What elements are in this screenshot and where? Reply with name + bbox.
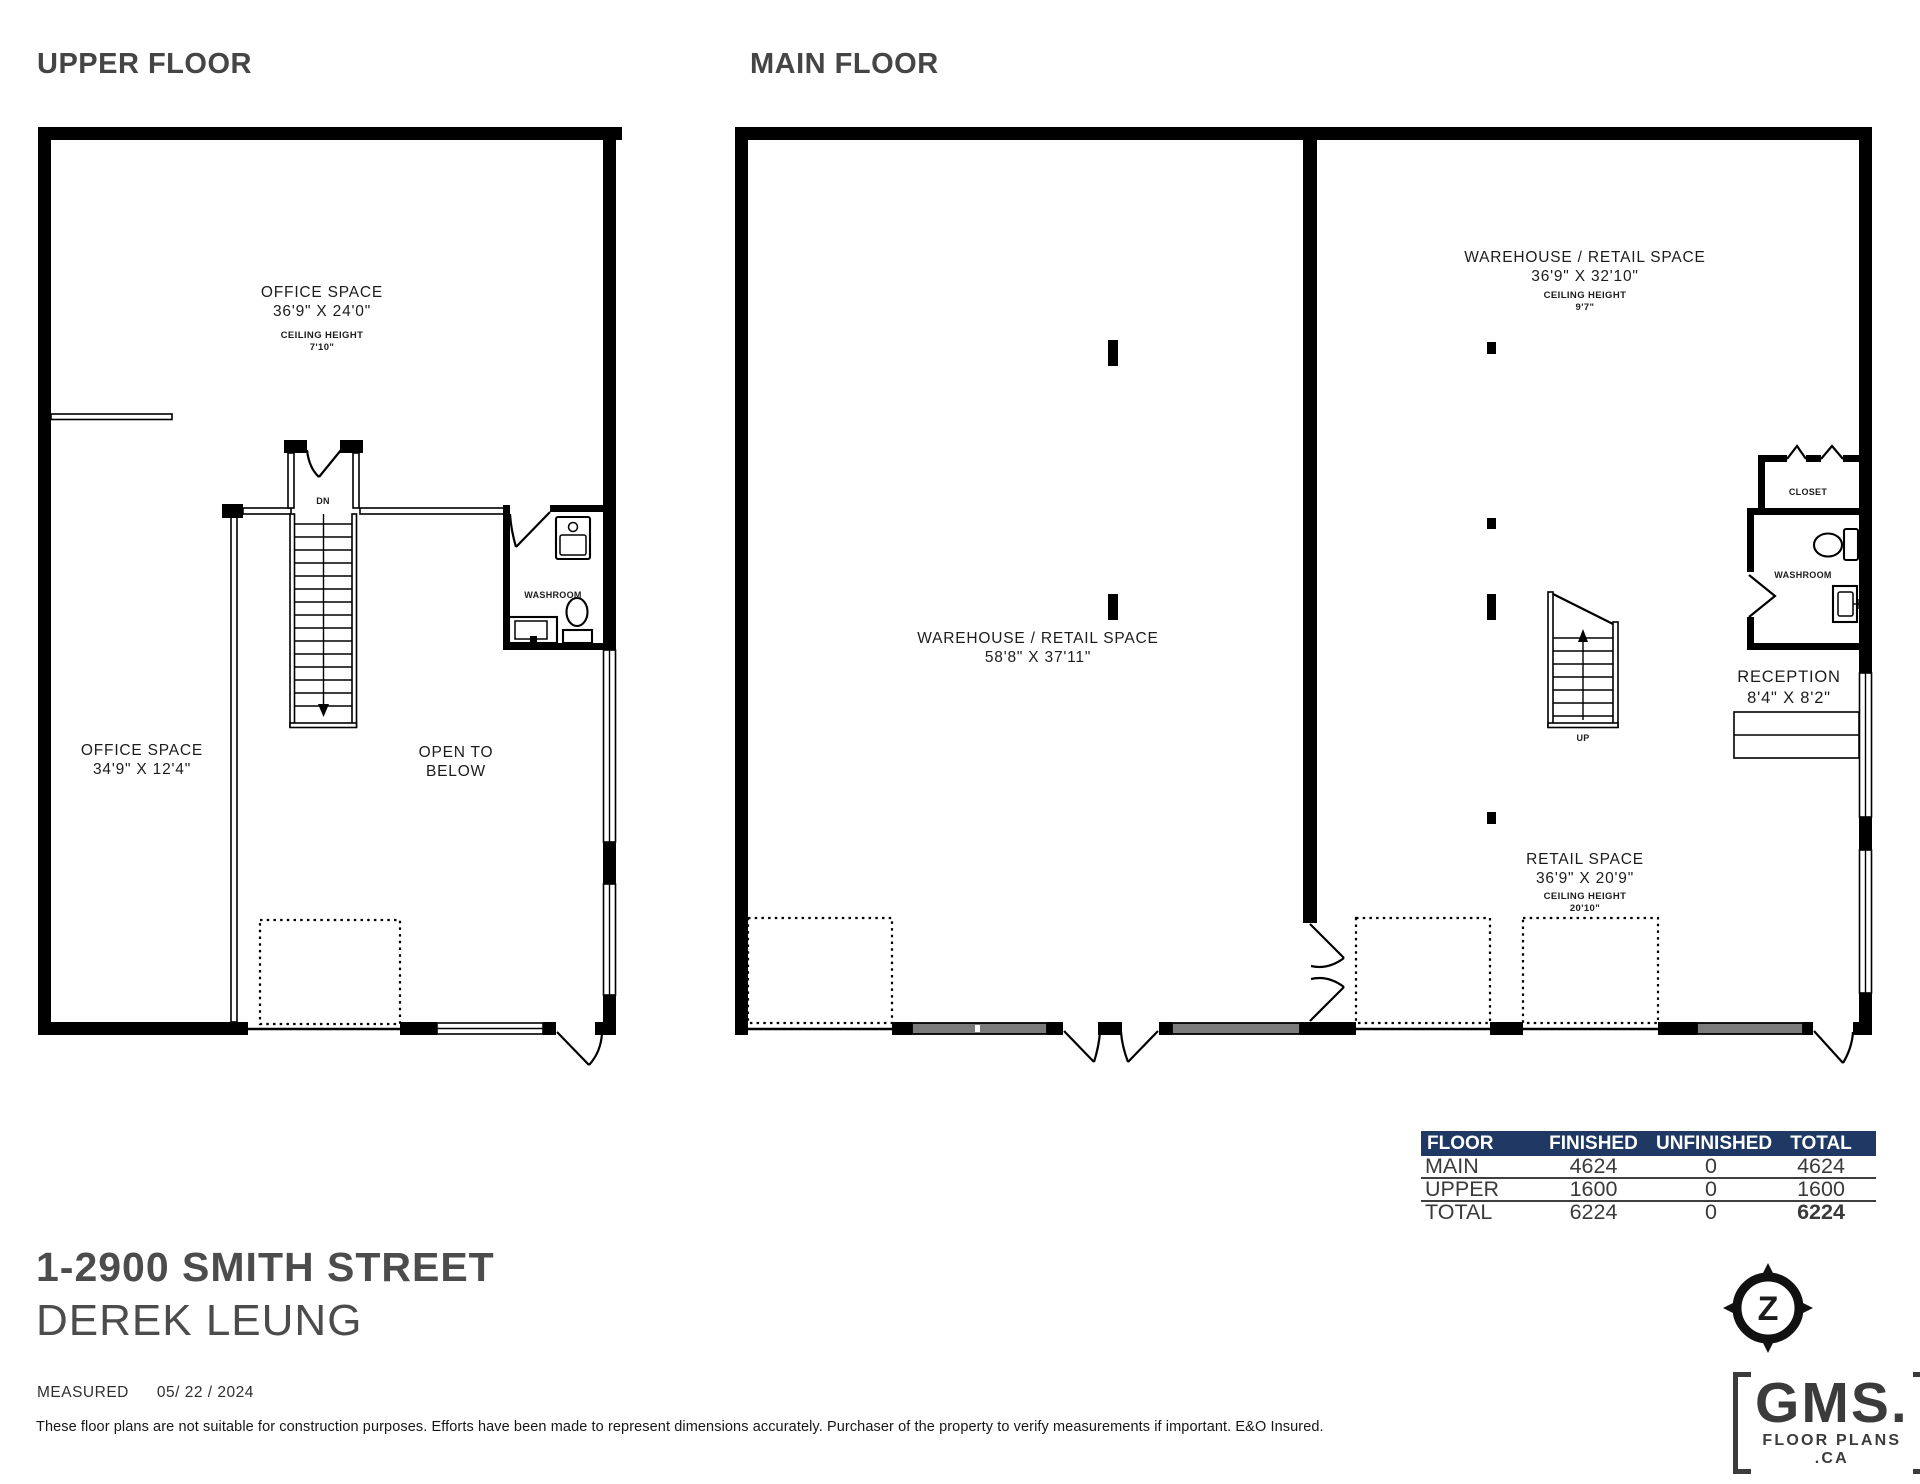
main-dividing-wall [1303,140,1317,923]
table-row-main: MAIN 4624 0 4624 [1421,1156,1876,1179]
logo-bracket-right [1913,1372,1920,1474]
cell: 6224 [1766,1202,1876,1224]
measured-label: MEASURED [37,1384,129,1401]
vanity-icon [509,617,557,643]
reception-desk [1734,712,1859,758]
toilet-icon [563,598,592,643]
cell: 4624 [1531,1156,1656,1178]
upper-staircase-down [290,514,357,728]
measured-date: 05/ 22 / 2024 [157,1384,254,1401]
upper-office1-dims: 36'9" X 24'0" [273,303,371,320]
upper-right-windows [603,650,616,1035]
retail-ch-label: CEILING HEIGHT [1544,891,1627,902]
upper-wall-right-top [603,127,616,650]
main-dashed-area-1 [748,918,892,1023]
compass-letter: Z [1758,1290,1779,1328]
logo-bracket-left [1733,1372,1751,1474]
cell: 6224 [1531,1202,1656,1224]
main-dashed-area-2 [1356,918,1490,1023]
logo-subtitle: FLOOR PLANS .CA [1753,1432,1910,1468]
cell: UPPER [1421,1179,1531,1201]
main-wall-top [735,127,1872,140]
cell: 0 [1656,1202,1766,1224]
logo-text-block: GMS. FLOOR PLANS .CA [1751,1372,1912,1474]
warehouse-right-ch: 9'7" [1576,302,1595,313]
upper-wall-left [38,127,51,1035]
compass-icon: Z [1716,1258,1820,1362]
reception-dims: 8'4" X 8'2" [1747,689,1831,707]
main-double-door [1064,1031,1158,1062]
open-to-below-line2: BELOW [426,763,486,780]
upper-mid-wall [222,504,505,518]
floorplan-page: UPPER FLOOR MAIN FLOOR [0,0,1920,1484]
toilet-icon [1814,529,1858,560]
col-finished: FINISHED [1531,1133,1656,1155]
dividing-wall-doors [1310,924,1344,1021]
sink-icon [1833,586,1862,622]
retail-ch: 20'10" [1570,903,1600,914]
cell: 4624 [1766,1156,1876,1178]
property-address: 1-2900 SMITH STREET [36,1244,495,1291]
warehouse-left-label: WAREHOUSE / RETAIL SPACE [917,630,1158,647]
up-label: UP [1576,733,1589,743]
client-name: DEREK LEUNG [36,1296,362,1346]
dn-label: DN [316,496,330,506]
cell: TOTAL [1421,1202,1531,1224]
upper-floor-plan: OFFICE SPACE 36'9" X 24'0" CEILING HEIGH… [38,127,622,1065]
main-staircase-up [1548,592,1618,728]
cell: 0 [1656,1156,1766,1178]
upper-entry-door [557,1032,602,1065]
closet-label: CLOSET [1789,487,1828,497]
upper-wall-top [38,127,622,140]
upper-stub-wall [51,414,172,420]
table-row-total: TOTAL 6224 0 6224 [1421,1202,1876,1223]
upper-office2-dims: 34'9" X 12'4" [93,761,191,778]
main-wall-left [735,127,748,1035]
warehouse-right-label: WAREHOUSE / RETAIL SPACE [1464,249,1705,266]
upper-washroom-label: WASHROOM [524,590,581,600]
cell: 1600 [1766,1179,1876,1201]
open-to-below-line1: OPEN TO [419,744,494,761]
area-table: FLOOR FINISHED UNFINISHED TOTAL MAIN 462… [1421,1131,1876,1223]
main-right-door [1814,1031,1853,1063]
logo-name: GMS. [1753,1376,1910,1430]
main-floor-plan: WAREHOUSE / RETAIL SPACE 36'9" X 32'10" … [735,127,1872,1063]
main-wall-right [1859,127,1872,1035]
cell: 1600 [1531,1179,1656,1201]
retail-dims: 36'9" X 20'9" [1536,870,1634,887]
main-wall-bottom [748,1022,1872,1035]
cell: 0 [1656,1179,1766,1201]
upper-office2-label: OFFICE SPACE [81,742,203,759]
down-arrow-icon [318,704,329,717]
table-row-upper: UPPER 1600 0 1600 [1421,1179,1876,1202]
reception-label: RECEPTION [1737,668,1840,686]
cell: MAIN [1421,1156,1531,1178]
gms-logo: GMS. FLOOR PLANS .CA [1733,1372,1920,1474]
col-unfinished: UNFINISHED [1656,1133,1766,1155]
warehouse-left-dims: 58'8" X 37'11" [985,649,1091,666]
main-closet [1758,446,1859,515]
up-arrow-icon [1578,629,1588,642]
upper-washroom [503,505,616,650]
upper-office1-ch: 7'10" [310,342,335,353]
upper-divider-wall [231,513,237,1022]
warehouse-right-ch-label: CEILING HEIGHT [1544,290,1627,301]
retail-label: RETAIL SPACE [1526,851,1644,868]
warehouse-right-dims: 36'9" X 32'10" [1531,268,1638,285]
upper-office1-ch-label: CEILING HEIGHT [281,330,364,341]
upper-dashed-area [260,920,400,1024]
main-dashed-area-3 [1523,918,1658,1023]
disclaimer-text: These floor plans are not suitable for c… [36,1419,1324,1435]
structural-columns [1108,340,1496,824]
col-total: TOTAL [1766,1133,1876,1155]
area-table-header: FLOOR FINISHED UNFINISHED TOTAL [1421,1131,1876,1156]
col-floor: FLOOR [1421,1133,1531,1155]
measured-line: MEASURED05/ 22 / 2024 [37,1384,254,1402]
main-washroom-label: WASHROOM [1774,570,1831,580]
upper-office1-label: OFFICE SPACE [261,284,383,301]
laundry-sink-icon [556,517,590,559]
